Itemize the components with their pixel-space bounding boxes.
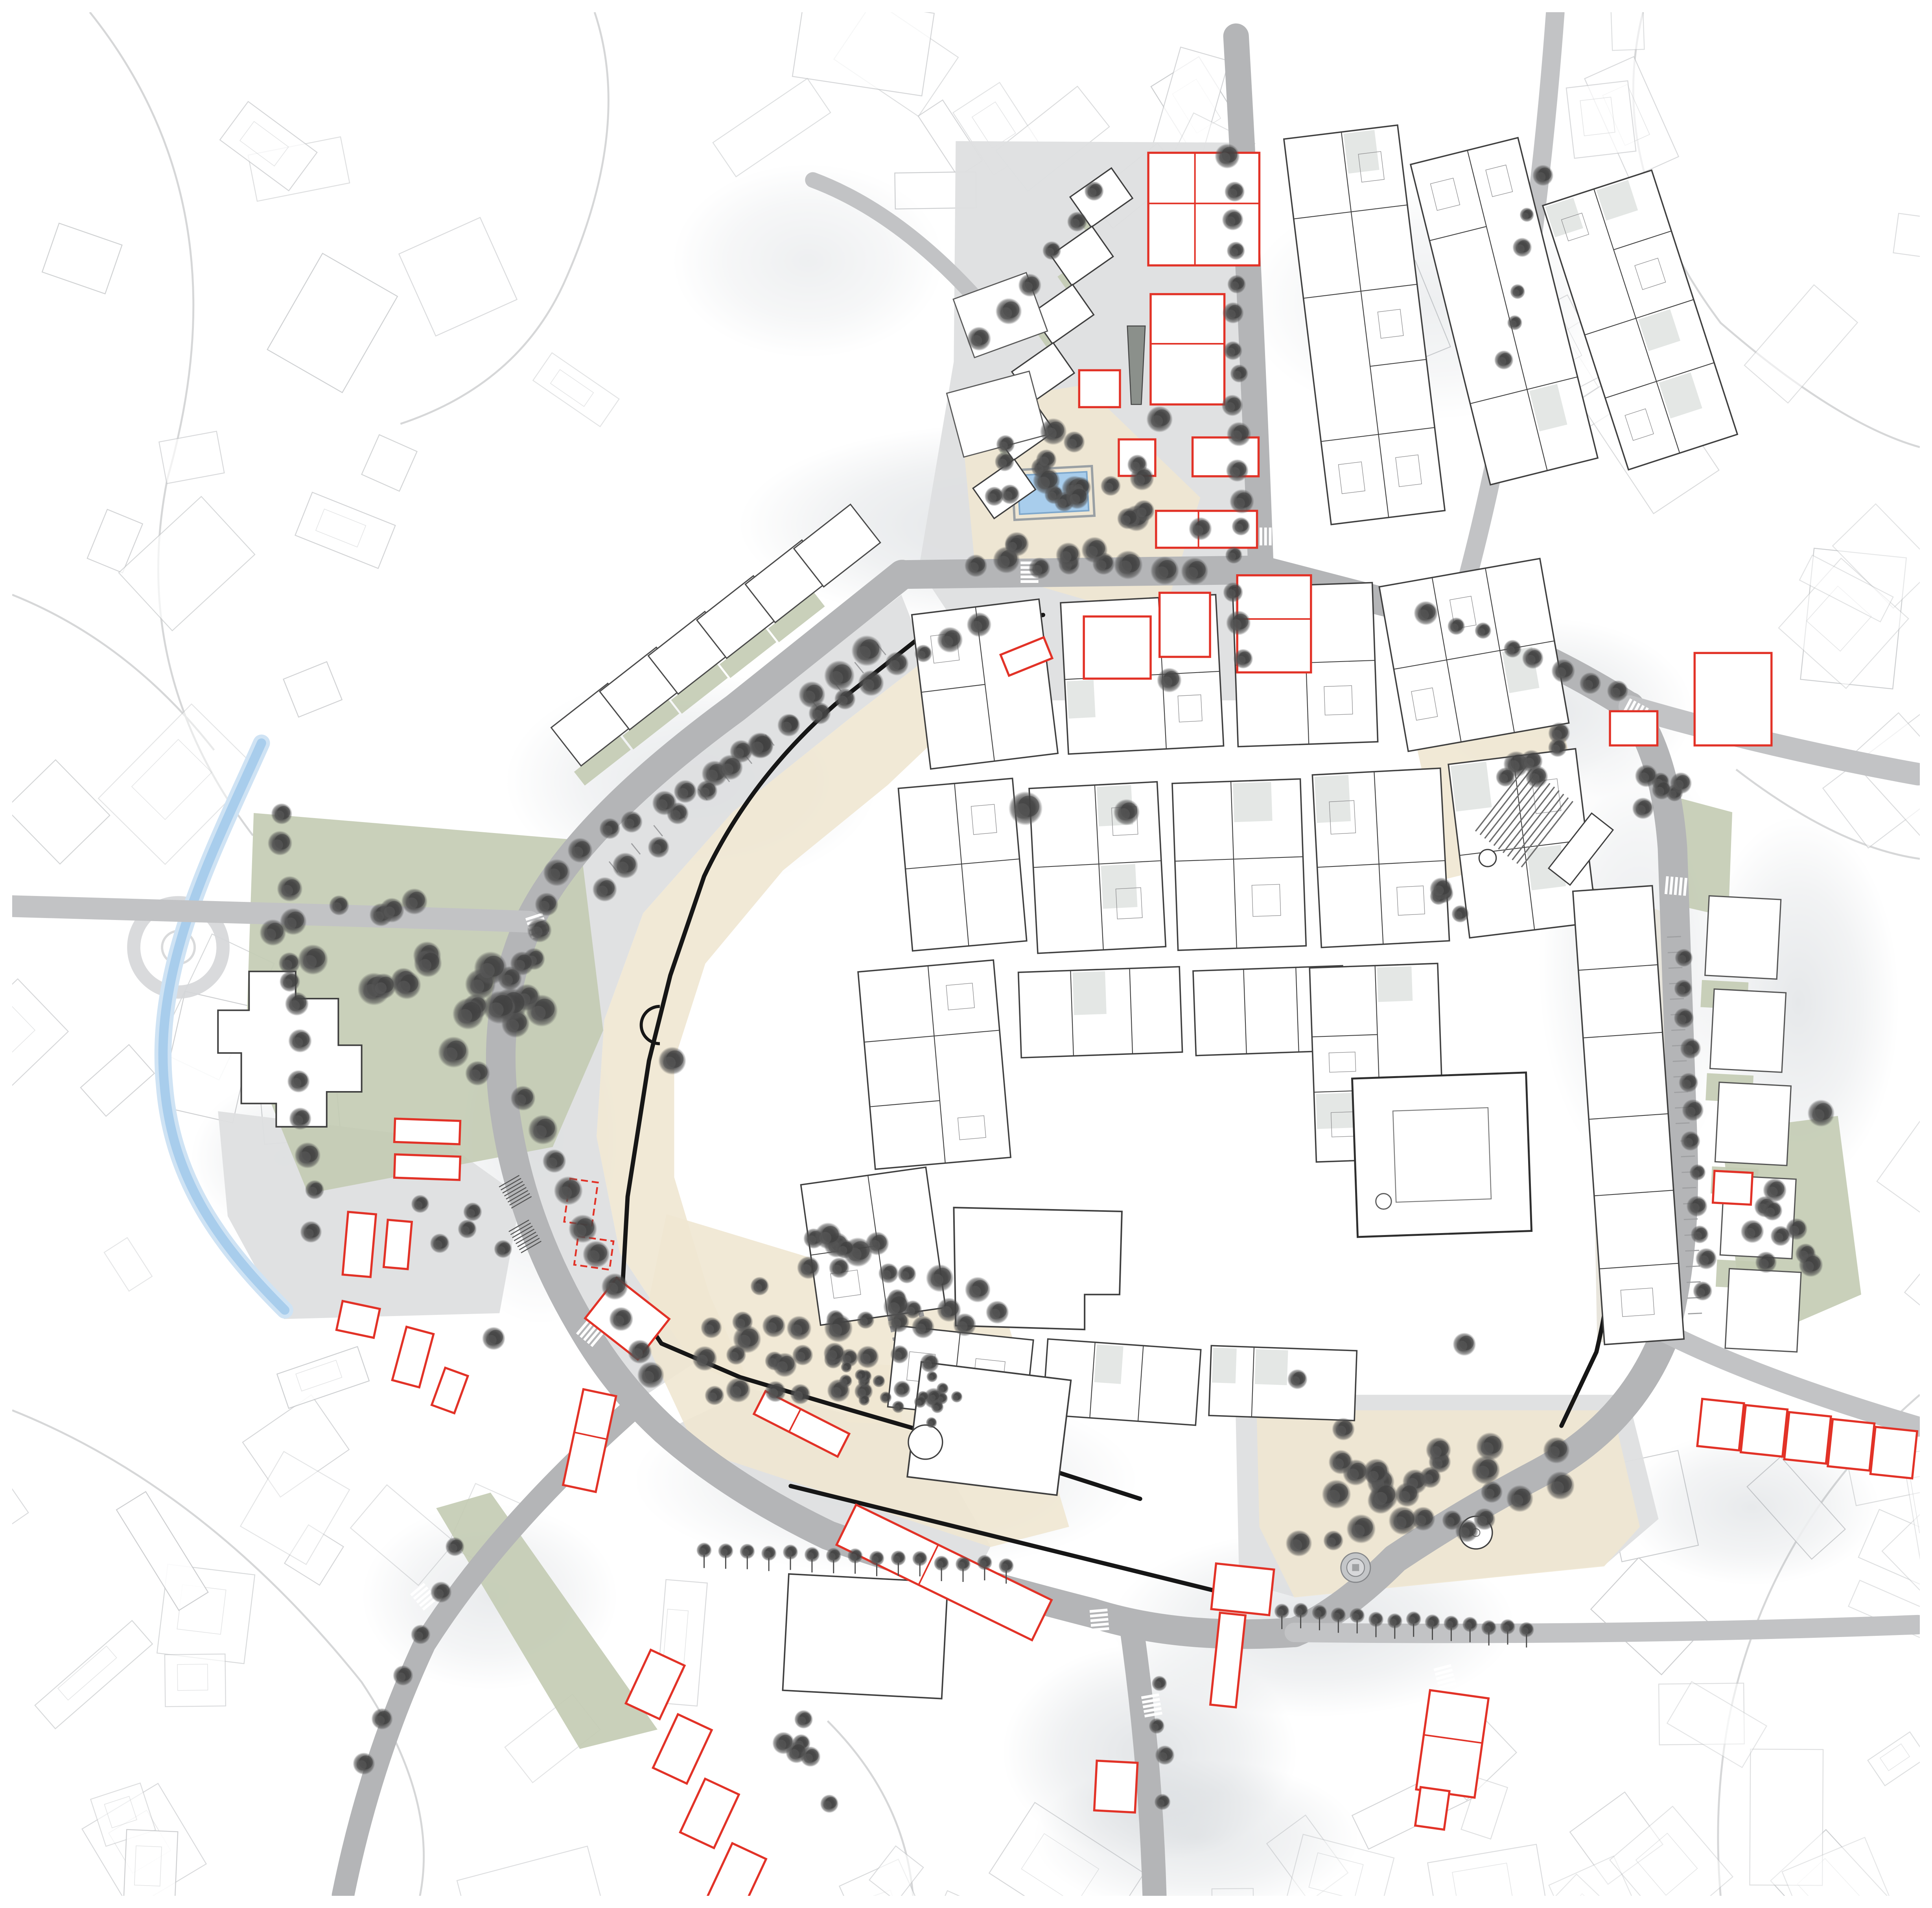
tree-canopy-light bbox=[374, 911, 384, 922]
parcel-line bbox=[1158, 597, 1166, 749]
tree-canopy bbox=[1274, 1603, 1289, 1619]
tree bbox=[510, 1086, 536, 1111]
tree-canopy-core bbox=[736, 743, 750, 757]
parking-tick bbox=[810, 698, 819, 709]
tree bbox=[1018, 273, 1041, 297]
grey-wash bbox=[1243, 187, 1616, 420]
tree-canopy-light bbox=[1433, 894, 1440, 901]
tree-canopy-light bbox=[937, 1396, 943, 1402]
context-layer bbox=[12, 12, 1920, 1896]
crosswalk-stripe bbox=[584, 1326, 596, 1340]
parcel-line bbox=[1374, 772, 1383, 944]
context-building bbox=[533, 353, 619, 427]
tree-canopy-light bbox=[768, 1388, 778, 1397]
proposed-building bbox=[1828, 1419, 1875, 1471]
tree-canopy-core bbox=[960, 1558, 969, 1567]
existing-building bbox=[1193, 966, 1345, 1055]
tree-canopy-core bbox=[840, 1242, 853, 1254]
existing-building bbox=[1061, 594, 1224, 754]
tree-canopy-light bbox=[1654, 779, 1663, 787]
tree bbox=[1666, 784, 1683, 802]
inner-parcel-line bbox=[1431, 178, 1460, 210]
context-road bbox=[1736, 769, 1920, 859]
tree bbox=[1740, 1220, 1764, 1243]
parcel-line bbox=[1578, 964, 1658, 970]
tree bbox=[740, 1543, 755, 1569]
tree-canopy-light bbox=[1193, 525, 1203, 536]
tree-canopy-core bbox=[755, 1279, 767, 1291]
tree-canopy-core bbox=[1679, 982, 1691, 993]
context-building bbox=[159, 431, 224, 483]
tree bbox=[937, 627, 963, 653]
tree-canopy-core bbox=[770, 1354, 782, 1366]
tree bbox=[463, 1202, 482, 1221]
tree bbox=[926, 1417, 937, 1428]
existing-building bbox=[1411, 138, 1598, 485]
tree bbox=[1693, 1281, 1713, 1301]
paved-area-nw-promenade bbox=[505, 595, 926, 1397]
tree-canopy-core bbox=[1228, 212, 1241, 225]
parking-tick bbox=[1680, 1140, 1694, 1141]
tree-canopy-core bbox=[295, 1032, 309, 1047]
tree-canopy-light bbox=[1457, 1340, 1468, 1351]
tree-canopy bbox=[843, 1237, 873, 1266]
tree-canopy-core bbox=[732, 1347, 744, 1360]
tree-canopy-light bbox=[998, 556, 1010, 568]
tree-canopy-light bbox=[1158, 1752, 1167, 1761]
tree-canopy bbox=[483, 991, 516, 1024]
tree bbox=[1674, 1008, 1694, 1028]
tree-canopy-core bbox=[852, 1550, 861, 1560]
existing-building bbox=[1309, 963, 1444, 1162]
tree-canopy bbox=[967, 612, 991, 637]
existing-house bbox=[551, 683, 638, 766]
tree-canopy bbox=[510, 951, 534, 975]
tree-canopy bbox=[1323, 1530, 1343, 1550]
tree bbox=[928, 1390, 940, 1403]
parcel-line bbox=[905, 864, 961, 868]
existing-building bbox=[1573, 885, 1684, 1344]
tree-canopy bbox=[260, 919, 286, 946]
tree-canopy-core bbox=[862, 1371, 871, 1379]
tree-canopy-light bbox=[927, 1395, 936, 1404]
tree-canopy-light bbox=[1227, 589, 1236, 598]
sand-area bbox=[1257, 1410, 1640, 1597]
crosswalk-stripe bbox=[1434, 1665, 1451, 1670]
tree-canopy-core bbox=[1776, 1228, 1789, 1241]
city-block bbox=[1209, 1346, 1357, 1421]
tree bbox=[1223, 341, 1243, 360]
tree bbox=[1114, 550, 1143, 579]
context-building bbox=[1585, 57, 1679, 179]
tree-canopy bbox=[1114, 550, 1143, 579]
tree bbox=[878, 1263, 899, 1283]
tree-canopy-core bbox=[1000, 550, 1017, 567]
obelisk-monument bbox=[1127, 326, 1145, 404]
tree bbox=[1222, 302, 1244, 324]
parcel-line bbox=[1594, 189, 1680, 453]
context-building bbox=[1566, 81, 1636, 158]
tree-canopy-light bbox=[1484, 1488, 1494, 1498]
tree bbox=[1406, 1611, 1421, 1637]
tree-canopy-light bbox=[1766, 1207, 1775, 1217]
tree-canopy-light bbox=[928, 1375, 934, 1380]
tree-canopy bbox=[820, 1794, 838, 1813]
amphitheatre-step bbox=[1517, 798, 1568, 863]
garden-strip bbox=[999, 430, 1038, 464]
tree bbox=[893, 1380, 911, 1397]
crosswalk-stripe bbox=[417, 1591, 431, 1602]
inner-parcel-line bbox=[1329, 800, 1356, 834]
tree-canopy-light bbox=[1290, 1539, 1302, 1551]
tree-canopy-light bbox=[795, 1740, 803, 1749]
proposed-building bbox=[1119, 439, 1155, 476]
tree-canopy-core bbox=[447, 1040, 466, 1060]
tree-canopy-core bbox=[359, 1755, 373, 1769]
tree bbox=[1476, 1432, 1504, 1460]
tree-canopy-light bbox=[433, 1240, 442, 1249]
proposed-building-divisions bbox=[789, 1409, 801, 1432]
tree bbox=[967, 612, 991, 637]
tree bbox=[1349, 1608, 1365, 1633]
tree-canopy bbox=[1500, 1619, 1515, 1634]
tree-canopy-light bbox=[751, 741, 763, 753]
tree bbox=[824, 1314, 853, 1342]
context-building bbox=[35, 1620, 153, 1729]
tree-canopy-core bbox=[707, 1320, 720, 1333]
tree-canopy bbox=[285, 992, 309, 1016]
tree-canopy-light bbox=[547, 1158, 557, 1168]
proposed-building-divisions bbox=[1148, 153, 1259, 265]
tree bbox=[733, 1325, 761, 1353]
market-apse bbox=[908, 1425, 943, 1459]
proposed-building bbox=[394, 1119, 460, 1144]
tree-canopy-light bbox=[1497, 357, 1506, 365]
tree-canopy-core bbox=[1613, 683, 1626, 696]
paved-area-north-square bbox=[919, 141, 1251, 700]
tree-canopy bbox=[1227, 275, 1246, 293]
tree-canopy bbox=[535, 892, 558, 916]
context-building bbox=[177, 1664, 208, 1690]
shaded-building bbox=[1545, 197, 1583, 237]
tree bbox=[798, 681, 825, 708]
context-building bbox=[656, 1580, 707, 1706]
tree-canopy bbox=[1387, 1613, 1402, 1628]
tree-canopy-core bbox=[468, 1205, 480, 1217]
tree-canopy-core bbox=[1686, 1134, 1698, 1146]
tree-canopy-core bbox=[1518, 240, 1530, 252]
tree-canopy-core bbox=[756, 736, 771, 752]
crosswalk-stripe bbox=[1436, 1674, 1453, 1679]
tree bbox=[897, 1265, 916, 1283]
tree-canopy bbox=[1328, 1450, 1353, 1475]
tree-canopy-light bbox=[1234, 498, 1245, 509]
tree-canopy-light bbox=[841, 1379, 847, 1384]
tree-canopy-light bbox=[1555, 667, 1566, 678]
tree-canopy-light bbox=[652, 844, 661, 854]
tree-canopy-core bbox=[974, 330, 989, 345]
tree-canopy-light bbox=[1423, 1474, 1433, 1484]
tree-canopy bbox=[1157, 667, 1182, 692]
tree-canopy-core bbox=[1160, 1748, 1173, 1760]
tree-canopy-core bbox=[1222, 147, 1237, 162]
masterplan-map bbox=[12, 12, 1920, 1896]
crosswalk-stripe bbox=[423, 1598, 436, 1609]
tree-canopy-light bbox=[419, 959, 431, 972]
tree-canopy bbox=[1018, 273, 1041, 297]
tree bbox=[1286, 1530, 1312, 1556]
tree-canopy bbox=[834, 688, 856, 709]
tree-canopy-light bbox=[1415, 1515, 1426, 1526]
crosswalk bbox=[1090, 1610, 1109, 1630]
tree bbox=[993, 546, 1020, 573]
tree-canopy bbox=[912, 1550, 927, 1566]
tree-canopy-core bbox=[792, 1744, 805, 1757]
parking-tick bbox=[1681, 1156, 1695, 1157]
tree-canopy-core bbox=[806, 684, 823, 701]
tree-canopy-light bbox=[1516, 244, 1525, 253]
tree-canopy bbox=[1686, 1195, 1707, 1217]
tree-canopy bbox=[1225, 546, 1243, 564]
tree bbox=[1522, 647, 1543, 669]
proposed-layer bbox=[337, 153, 1917, 1896]
tree-canopy bbox=[628, 1340, 652, 1364]
tree-canopy bbox=[794, 1710, 813, 1729]
tree bbox=[1040, 418, 1066, 445]
shaded-building bbox=[1377, 966, 1413, 1002]
bench bbox=[501, 1178, 521, 1190]
tree bbox=[1506, 1485, 1533, 1512]
tree-canopy-core bbox=[1801, 1246, 1814, 1259]
tree-canopy bbox=[1674, 979, 1692, 997]
existing-building bbox=[1232, 583, 1378, 747]
tree-canopy-light bbox=[729, 1351, 739, 1360]
tree-canopy-core bbox=[376, 906, 390, 920]
tree-canopy-core bbox=[787, 1546, 796, 1556]
tree-canopy bbox=[528, 1115, 558, 1145]
context-building bbox=[1153, 113, 1255, 225]
tree-canopy bbox=[1146, 406, 1173, 432]
tree-canopy-core bbox=[1233, 614, 1248, 629]
map-background bbox=[12, 12, 1920, 1896]
tree-canopy-core bbox=[1694, 1166, 1704, 1176]
paved-area-se-plaza bbox=[1235, 1395, 1658, 1596]
existing-house bbox=[1012, 343, 1074, 402]
amphitheatre-step bbox=[1485, 772, 1536, 838]
tree-canopy bbox=[726, 1377, 751, 1403]
tree-canopy bbox=[1455, 1519, 1478, 1542]
tree-canopy-core bbox=[1792, 1221, 1805, 1234]
tree-canopy-light bbox=[1409, 1617, 1416, 1624]
tree-canopy-light bbox=[882, 1270, 891, 1279]
town-hall-building bbox=[954, 1207, 1122, 1329]
tree-canopy bbox=[858, 670, 884, 696]
tree-canopy bbox=[1543, 1437, 1570, 1464]
tree-canopy-light bbox=[1508, 760, 1519, 772]
tree-canopy-light bbox=[1548, 1446, 1560, 1458]
tree-canopy-light bbox=[449, 1544, 457, 1552]
tree-canopy bbox=[523, 948, 545, 970]
tree bbox=[1117, 508, 1139, 529]
tree-canopy-core bbox=[293, 1073, 308, 1087]
tree bbox=[652, 791, 677, 815]
crosswalk bbox=[1434, 1665, 1456, 1688]
existing-building bbox=[1543, 170, 1737, 469]
crosswalk-stripe bbox=[1144, 1708, 1162, 1711]
context-building bbox=[12, 979, 68, 1093]
tree-canopy bbox=[1151, 1676, 1167, 1691]
parcel-line bbox=[1656, 363, 1714, 382]
tree-canopy bbox=[494, 988, 528, 1021]
grey-wash bbox=[672, 164, 944, 358]
tree-canopy-core bbox=[860, 1384, 871, 1396]
tree-canopy-light bbox=[1096, 560, 1107, 570]
crosswalk-stripe bbox=[420, 1595, 434, 1606]
tree bbox=[465, 968, 495, 999]
tree-canopy bbox=[567, 838, 593, 863]
tree-canopy bbox=[411, 1195, 429, 1213]
context-building bbox=[1610, 1806, 1733, 1896]
tree-canopy-light bbox=[1745, 1228, 1755, 1239]
tree bbox=[995, 298, 1022, 324]
tree-canopy bbox=[1525, 765, 1548, 788]
tree-canopy bbox=[1635, 764, 1658, 787]
tree bbox=[1546, 1471, 1575, 1500]
tree-canopy-core bbox=[1527, 752, 1541, 767]
proposed-building-phase2 bbox=[574, 1236, 613, 1270]
parcel-line bbox=[1613, 231, 1671, 250]
tree-canopy bbox=[305, 1180, 324, 1199]
tree-canopy-light bbox=[1315, 1610, 1322, 1617]
context-building bbox=[1285, 1834, 1394, 1896]
tree bbox=[1786, 1218, 1808, 1240]
tree-canopy-light bbox=[1226, 310, 1236, 319]
tree-canopy-core bbox=[435, 1236, 448, 1248]
tree-canopy-light bbox=[470, 1069, 481, 1081]
proposed-building bbox=[1713, 1171, 1753, 1204]
tree-canopy-core bbox=[1479, 624, 1490, 635]
tree bbox=[413, 941, 441, 970]
tree-canopy-core bbox=[1436, 880, 1450, 894]
proposed-building bbox=[1697, 1399, 1744, 1450]
inner-parcel-line bbox=[1324, 686, 1353, 715]
inner-parcel-line bbox=[1396, 455, 1422, 487]
bench bbox=[521, 1241, 541, 1253]
tree-canopy-light bbox=[678, 788, 688, 798]
tree bbox=[873, 1375, 885, 1387]
city-block bbox=[1172, 779, 1306, 950]
tree-canopy bbox=[855, 1369, 867, 1381]
tree-canopy bbox=[1476, 1432, 1504, 1460]
parcel-line bbox=[1636, 299, 1694, 318]
context-building bbox=[1212, 1888, 1254, 1896]
parking-tick bbox=[698, 789, 707, 800]
tree-canopy bbox=[609, 1307, 634, 1331]
tree-canopy-light bbox=[1157, 1799, 1165, 1807]
tree-canopy-core bbox=[1230, 549, 1241, 559]
tree-canopy-core bbox=[809, 1231, 822, 1243]
tree-canopy bbox=[931, 1400, 944, 1413]
tree-canopy bbox=[497, 966, 522, 990]
tree-canopy bbox=[612, 852, 638, 878]
tree-canopy bbox=[1223, 582, 1243, 602]
tree-canopy bbox=[1067, 212, 1087, 232]
tree-canopy-core bbox=[1658, 782, 1670, 795]
context-building bbox=[270, 1049, 313, 1110]
tree bbox=[912, 1550, 927, 1576]
context-building bbox=[1882, 1510, 1920, 1617]
tree bbox=[1113, 799, 1140, 825]
tree-canopy-light bbox=[753, 1283, 762, 1292]
shaded-building bbox=[1451, 761, 1492, 811]
tree bbox=[494, 1240, 512, 1258]
tree-canopy bbox=[1770, 1226, 1791, 1246]
tree-canopy-core bbox=[1050, 487, 1061, 499]
tree-canopy-core bbox=[862, 1313, 873, 1324]
parcel-line bbox=[1317, 864, 1379, 867]
tree-canopy-light bbox=[1536, 172, 1545, 181]
tree bbox=[1328, 1450, 1353, 1475]
proposed-building bbox=[1694, 653, 1772, 745]
tree-canopy-core bbox=[1237, 519, 1248, 531]
tree bbox=[781, 714, 799, 732]
garden-strip bbox=[1700, 980, 1748, 1009]
tree bbox=[267, 831, 292, 855]
tree bbox=[749, 733, 774, 758]
tree-canopy bbox=[1395, 1482, 1420, 1507]
tree-canopy bbox=[891, 1550, 906, 1565]
tree-canopy-light bbox=[1058, 498, 1067, 507]
tree-canopy-core bbox=[1354, 1609, 1363, 1619]
tree-canopy bbox=[854, 1382, 873, 1401]
tree-canopy-core bbox=[1532, 768, 1546, 782]
tree-canopy-core bbox=[1278, 1606, 1288, 1615]
tree-canopy-core bbox=[1025, 277, 1039, 291]
parking-tick bbox=[1668, 952, 1682, 953]
tree-canopy-light bbox=[656, 799, 667, 810]
tree-canopy bbox=[1740, 1220, 1764, 1243]
inner-parcel-line bbox=[971, 804, 996, 835]
tree bbox=[835, 1239, 855, 1259]
church-courtyard bbox=[1393, 1108, 1491, 1202]
tree-canopy bbox=[856, 1346, 879, 1368]
tree-canopy-light bbox=[1228, 552, 1236, 560]
tree-canopy bbox=[717, 754, 743, 780]
tree-canopy bbox=[298, 944, 328, 975]
tree-canopy-light bbox=[1399, 1491, 1410, 1502]
tree-canopy-core bbox=[834, 1382, 848, 1396]
tree bbox=[401, 888, 427, 914]
tree-canopy-core bbox=[529, 951, 543, 964]
proposed-building-divisions bbox=[919, 1545, 938, 1585]
grey-wash bbox=[362, 1503, 618, 1690]
tree-canopy-core bbox=[1456, 907, 1467, 918]
tree-canopy bbox=[1113, 799, 1140, 825]
crosswalk-stripe bbox=[1141, 1694, 1159, 1698]
tree bbox=[483, 991, 516, 1024]
tree-canopy-core bbox=[1064, 556, 1077, 569]
tree bbox=[772, 1353, 797, 1377]
tree-canopy bbox=[1225, 181, 1245, 202]
context-building bbox=[42, 223, 122, 294]
tree-canopy-core bbox=[306, 1224, 320, 1237]
context-building bbox=[1172, 79, 1221, 133]
context-building bbox=[1452, 1863, 1513, 1896]
tree bbox=[702, 760, 728, 787]
proposed-building bbox=[343, 1212, 376, 1277]
tree-canopy-core bbox=[725, 758, 740, 774]
tree-canopy bbox=[357, 972, 390, 1005]
